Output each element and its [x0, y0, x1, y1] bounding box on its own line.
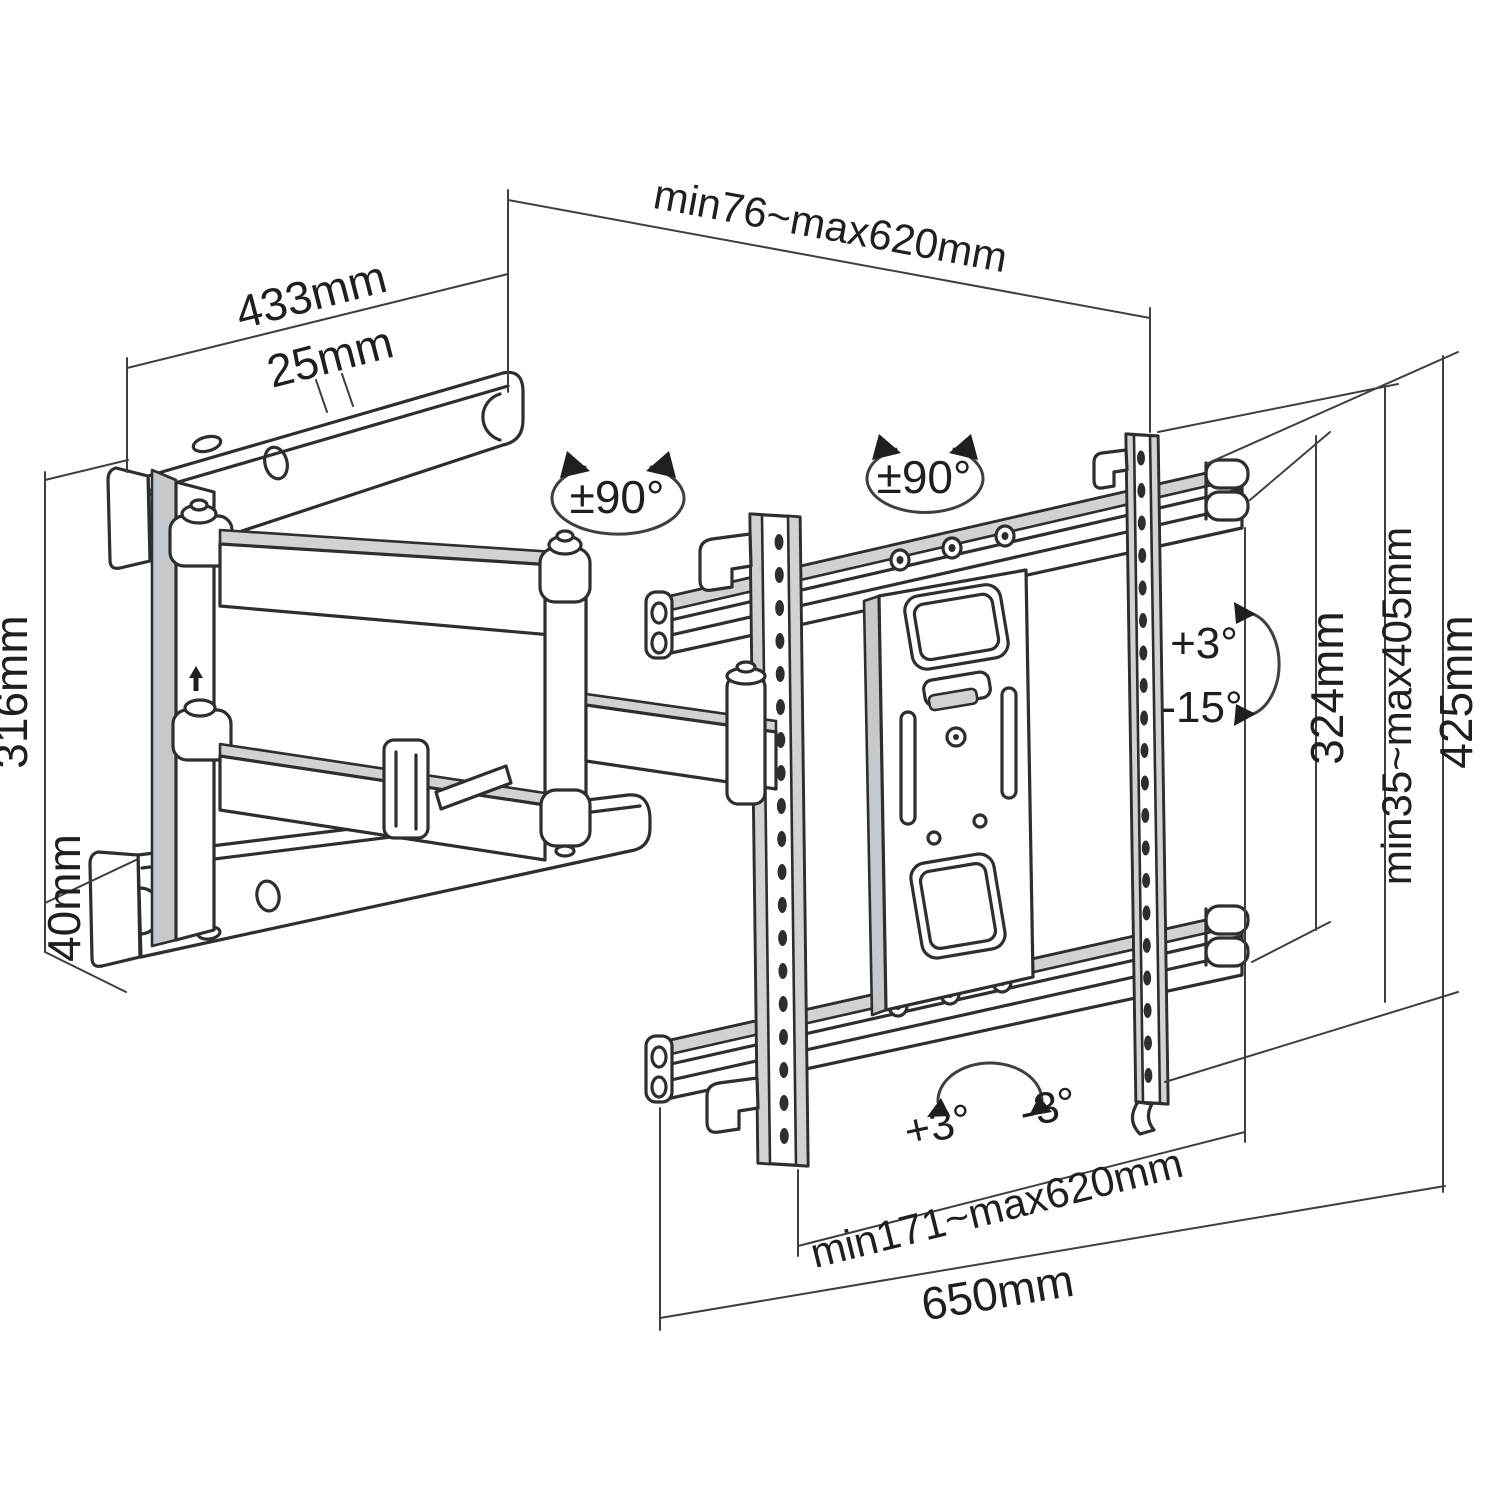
label-swivel-left: ±90°: [570, 471, 665, 523]
label-level-minus: -3°: [1015, 1078, 1081, 1138]
label-plate-height: 324mm: [1301, 611, 1353, 764]
right-rail-bottom-hook: [1132, 1102, 1154, 1134]
label-wall-plate-height: 316mm: [0, 615, 37, 768]
tilt-arc: [1253, 614, 1279, 714]
mount-dimension-diagram: min76~max620mm 433mm 25mm 316mm 40mm min…: [0, 0, 1500, 1500]
label-level-plus: +3°: [900, 1095, 976, 1157]
diagram-canvas: min76~max620mm 433mm 25mm 316mm 40mm min…: [0, 0, 1500, 1500]
label-arm-bar-height: 40mm: [38, 834, 90, 962]
left-rail-bottom-hook: [707, 1078, 758, 1132]
label-crossbar-length: 650mm: [917, 1254, 1077, 1331]
plate-left-slot: [901, 712, 915, 824]
label-swivel-right: ±90°: [877, 451, 972, 503]
label-total-height: 425mm: [1430, 615, 1482, 768]
label-tilt-up: +3°: [1170, 619, 1238, 668]
right-rail-top-hook: [1094, 450, 1127, 488]
plate-right-slot: [1002, 688, 1016, 798]
plate-swivel-bracket: [727, 676, 765, 804]
cable-clip: [384, 740, 428, 838]
plate-top-window: [903, 582, 1011, 671]
vesa-plate: [864, 570, 1033, 1015]
label-extension-depth: min76~max620mm: [650, 170, 1011, 281]
label-bracket-width-range: min171~max620mm: [806, 1139, 1188, 1277]
label-tilt-down: -15°: [1161, 683, 1242, 732]
label-rail-height-range: min35~max405mm: [1373, 527, 1420, 885]
articulating-arm: [220, 530, 776, 860]
